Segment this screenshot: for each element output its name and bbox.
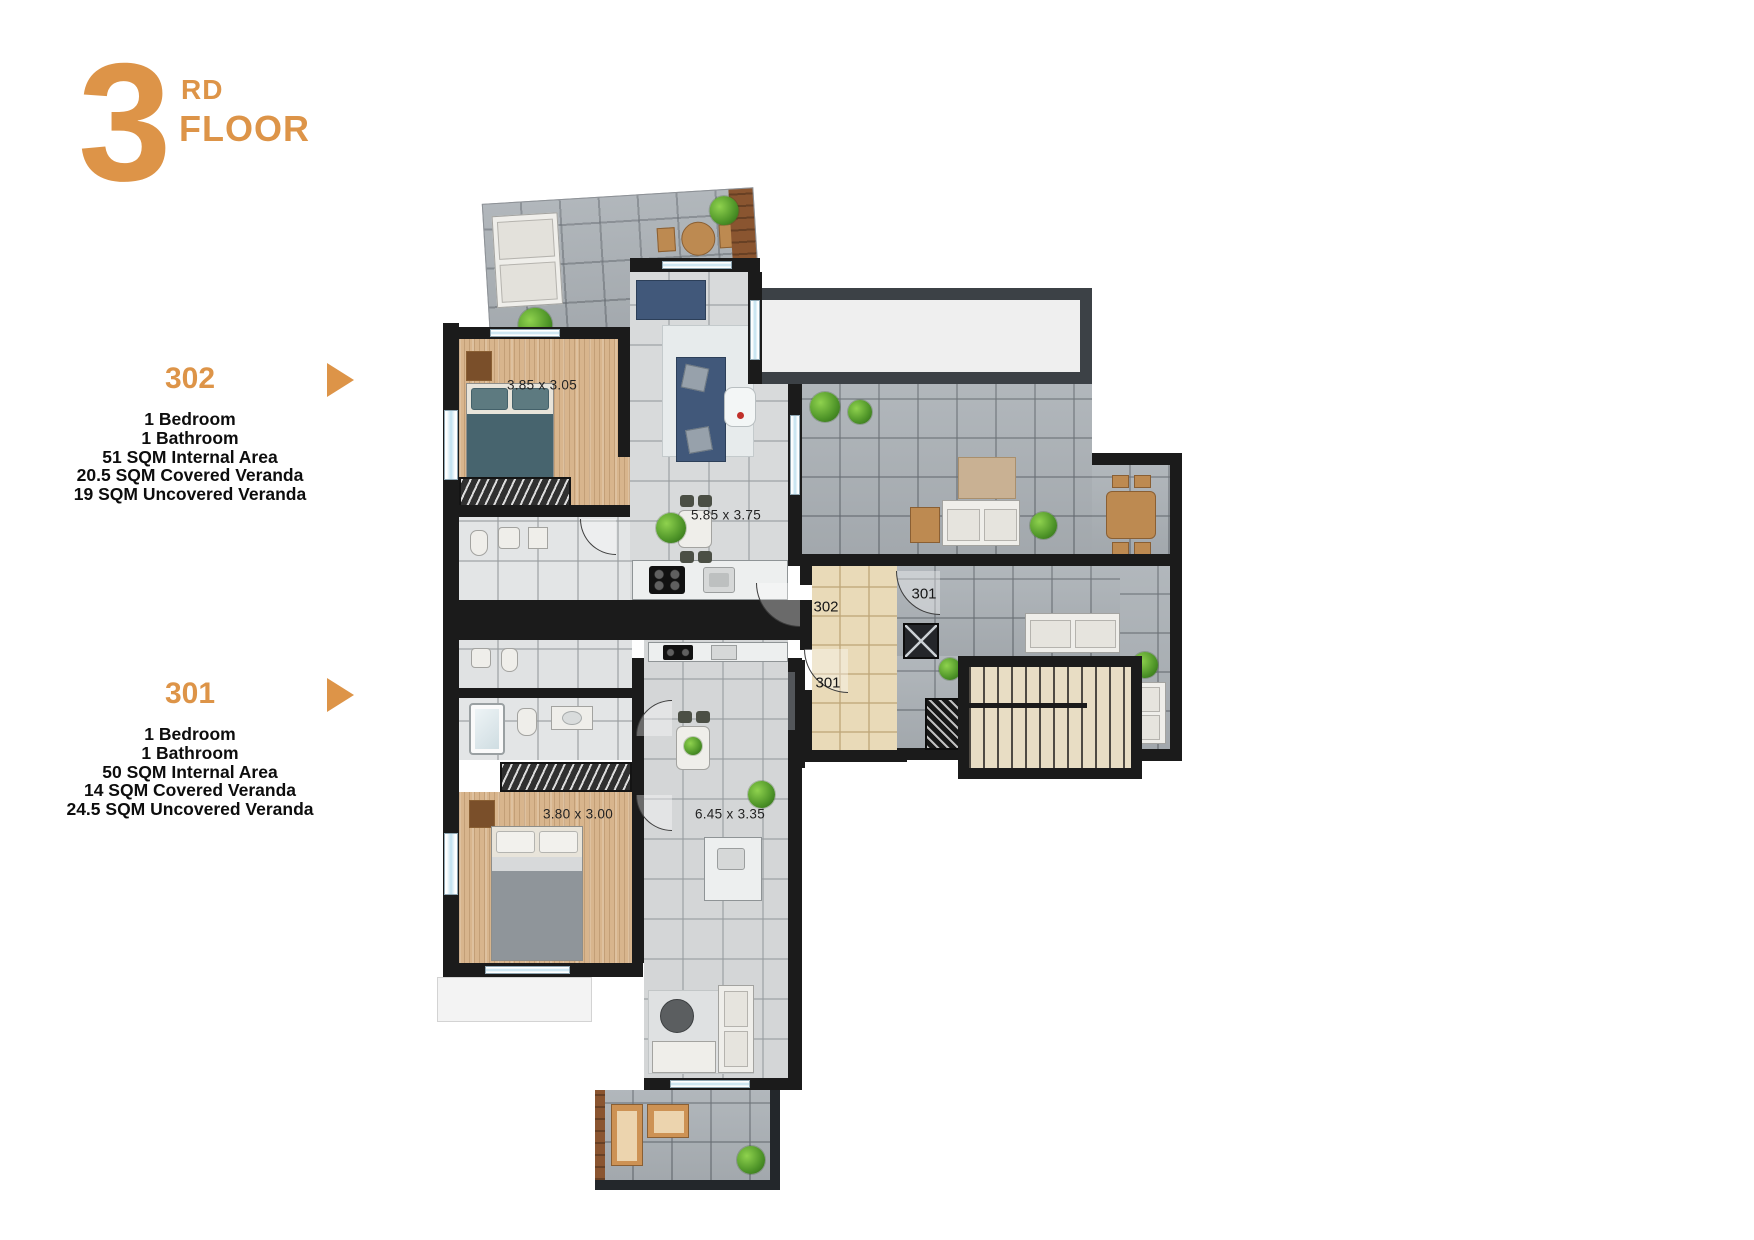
sliding-door (750, 300, 760, 360)
sink (471, 648, 491, 668)
sofa-cushion (947, 509, 980, 541)
bed (491, 826, 583, 961)
unit-302-detail-line: 19 SQM Uncovered Veranda (40, 485, 340, 504)
outdoor-dining-table (1106, 491, 1156, 539)
sink-basin (709, 573, 729, 587)
wall (757, 372, 1092, 384)
dimension-bedroom-302: 3.85 x 3.05 (507, 378, 577, 393)
outdoor-side-table (910, 507, 940, 543)
nightstand (466, 351, 492, 381)
door-label-301-upper: 301 (911, 586, 936, 603)
unit-301-detail-line: 1 Bathroom (40, 744, 340, 763)
sliding-door (790, 415, 800, 495)
x-icon (905, 625, 937, 657)
shaft-symbol (903, 623, 939, 659)
floor-ordinal-suffix: RD (181, 74, 223, 106)
wardrobe (459, 477, 571, 507)
shower (469, 703, 505, 755)
wall (788, 658, 802, 672)
dining-chair (698, 495, 712, 507)
coffee-table (660, 999, 694, 1033)
unit-302-arrow-icon (327, 363, 354, 397)
sofa-cushion (724, 991, 748, 1027)
unit-301-arrow-icon (327, 678, 354, 712)
outdoor-chair (657, 227, 676, 252)
staircase (958, 656, 1142, 779)
sink-basin (562, 711, 582, 725)
pillow (496, 831, 535, 853)
sofa-cushion (724, 1031, 748, 1067)
bench-cushion (654, 1111, 684, 1133)
table-decor (737, 412, 744, 419)
plant (1030, 512, 1057, 539)
kitchen-sink (703, 567, 735, 593)
pillow (539, 831, 578, 853)
toilet (501, 648, 518, 672)
wall (443, 505, 630, 517)
coffee-table (724, 387, 756, 427)
pillow (471, 388, 508, 410)
dimension-bedroom-301: 3.80 x 3.00 (543, 807, 613, 822)
wall (443, 600, 813, 640)
stair-divider (969, 703, 1087, 708)
kitchen-counter-301 (648, 642, 788, 662)
unit-302-detail-line: 20.5 SQM Covered Veranda (40, 466, 340, 485)
unit-301-number: 301 (40, 677, 340, 711)
blanket (492, 857, 582, 960)
toilet (470, 530, 488, 556)
unit-302-details: 1 Bedroom 1 Bathroom 51 SQM Internal Are… (40, 410, 340, 504)
toilet (517, 708, 537, 736)
unit-301-detail-line: 14 SQM Covered Veranda (40, 781, 340, 800)
plant (737, 1146, 765, 1174)
dimension-living-301: 6.45 x 3.35 (695, 807, 765, 822)
wall (788, 730, 802, 1090)
unit-302-number: 302 (40, 362, 340, 396)
outdoor-rug (958, 457, 1016, 499)
window (490, 329, 560, 337)
kitchen-island-301 (704, 837, 762, 901)
veranda-dining-nook (1092, 453, 1182, 554)
sofa-cushion (500, 261, 558, 302)
sofa-cushion (497, 219, 555, 260)
nightstand (469, 800, 495, 828)
bench-cushion (617, 1111, 637, 1161)
outdoor-chair (1112, 475, 1129, 488)
door-label-302: 302 (813, 599, 838, 616)
outdoor-chair (1134, 475, 1151, 488)
unit-302-detail-line: 51 SQM Internal Area (40, 448, 340, 467)
wood-bench (647, 1104, 689, 1138)
plant (748, 781, 775, 808)
window (444, 410, 458, 480)
unit-301-detail-line: 1 Bedroom (40, 725, 340, 744)
sheet-fold (492, 857, 582, 871)
wall (800, 750, 907, 762)
floor-word: FLOOR (179, 108, 310, 150)
uncovered-veranda-302 (757, 288, 1092, 384)
wall (802, 554, 1182, 566)
unit-302-info: 302 1 Bedroom 1 Bathroom 51 SQM Internal… (40, 362, 340, 504)
dining-chair (698, 551, 712, 563)
sink (498, 527, 520, 549)
unit-302-detail-line: 1 Bathroom (40, 429, 340, 448)
window (485, 966, 570, 974)
uncovered-terrace-301 (437, 977, 592, 1022)
dining-chair (680, 551, 694, 563)
sofa-cushion (1030, 620, 1071, 648)
washing-machine (528, 527, 548, 549)
wc-301 (459, 640, 632, 688)
covered-veranda-302 (802, 384, 1092, 554)
sofa (652, 1041, 716, 1073)
cooktop (663, 645, 693, 660)
floor-number: 3 (78, 38, 171, 206)
unit-302-detail-line: 1 Bedroom (40, 410, 340, 429)
wall (800, 629, 812, 650)
outdoor-sofa (1025, 613, 1120, 653)
kitchen-sink (711, 645, 737, 660)
wall (800, 565, 812, 585)
floor-plan: 302 301 301 (430, 185, 1190, 1197)
shower-glass (475, 709, 499, 749)
throw-pillow (685, 426, 713, 454)
dining-chair (696, 711, 710, 723)
window (444, 833, 458, 895)
cooktop (649, 566, 685, 594)
wardrobe (500, 762, 632, 792)
plant (810, 392, 840, 422)
throw-pillow (681, 364, 709, 392)
outdoor-loveseat (942, 500, 1020, 546)
unit-301-detail-line: 24.5 SQM Uncovered Veranda (40, 800, 340, 819)
wall (443, 688, 633, 698)
sofa-cushion (1075, 620, 1116, 648)
wall (618, 339, 630, 457)
bathroom-301 (459, 698, 632, 760)
sofa-cushion (984, 509, 1017, 541)
floor-plan-page: 3 RD FLOOR 302 1 Bedroom 1 Bathroom 51 S… (0, 0, 1754, 1240)
unit-301-info: 301 1 Bedroom 1 Bathroom 50 SQM Internal… (40, 677, 340, 819)
unit-301-detail-line: 50 SQM Internal Area (40, 763, 340, 782)
vanity-sink (551, 706, 593, 730)
unit-301-details: 1 Bedroom 1 Bathroom 50 SQM Internal Are… (40, 725, 340, 819)
door-label-301-lower: 301 (815, 675, 840, 692)
sofa (636, 280, 706, 320)
plant (684, 737, 702, 755)
window (662, 261, 732, 269)
outdoor-round-table (680, 221, 716, 257)
sofa (676, 357, 726, 462)
island-sink (717, 848, 745, 870)
sofa (718, 985, 754, 1073)
wood-privacy-wall (595, 1090, 605, 1180)
veranda-bottom-301 (595, 1090, 780, 1190)
dining-chair (678, 711, 692, 723)
sliding-door (670, 1080, 750, 1088)
dimension-living-302: 5.85 x 3.75 (691, 508, 761, 523)
plant (848, 400, 872, 424)
wood-bench (611, 1104, 643, 1166)
dining-chair (680, 495, 694, 507)
outdoor-sofa (492, 212, 563, 308)
plant (656, 513, 686, 543)
